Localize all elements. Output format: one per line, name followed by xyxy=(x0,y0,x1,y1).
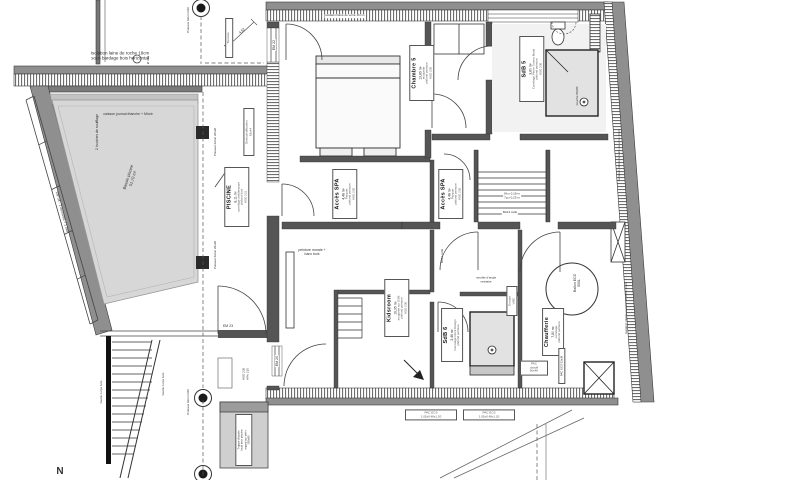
small-cabinet-box xyxy=(218,358,232,388)
room-label-kidsroom: Kidsroom 16,35 m² moquette sur OSB plafo… xyxy=(384,279,409,337)
label-deshumidificateur: Déshumidificateur 82x44 xyxy=(243,108,254,156)
shower-sdb6 xyxy=(470,312,514,375)
room-label-sdb6: SdB 6 3,46 m² Carrelage Rock Design plaf… xyxy=(441,308,463,362)
label-douche-8080: douche 80x80 xyxy=(576,87,580,106)
room-label-piscine: PISCINE 8,11 m² carrelage antidérapant p… xyxy=(224,167,249,227)
window-top xyxy=(488,10,578,22)
room-label-sdb5: SdB 5 3,80 m² Carrelage Pierre Tortora M… xyxy=(519,36,544,102)
note-roof-insulation: Isolation laine de roche 18cm sous barda… xyxy=(91,51,150,62)
label-hso235: HSO 235 HRv 215 xyxy=(242,368,249,380)
label-column-d20-bottom: Poteaux béton D20 xyxy=(187,389,191,415)
note-garde-corps-a: Garde corps bois xyxy=(100,381,104,404)
label-trappe: Trappe d'accès local tech piscine regard… xyxy=(235,414,252,466)
bench-wood xyxy=(286,252,294,328)
note-stair-dims: 8h x 0,18 m 7g x 0,25 m xyxy=(503,192,521,199)
flue-box xyxy=(584,362,614,394)
toilet xyxy=(551,22,565,45)
label-diam160: Ø 160 xyxy=(147,56,151,64)
label-pac-ecs-2: PAC ECS 1.05x0.48x1.20 xyxy=(463,409,515,420)
note-peinture-banc: peinture murale + banc bois xyxy=(298,248,325,256)
stair-kidsroom xyxy=(338,298,362,338)
stair-exterior xyxy=(106,336,160,478)
floor-plan-canvas: Isolation laine de roche 18cm sous barda… xyxy=(0,0,800,480)
label-pac-ecs-small: PAC ECS 53x38 xyxy=(558,348,565,384)
note-iso-int-a: Isolation intérieure laine de verre 16cm xyxy=(618,129,622,181)
note-iso-int-b: Isolation intérieure laine de verre 16cm xyxy=(625,282,629,334)
note-ba13-b: BA13 collé xyxy=(441,249,445,263)
towel-radiator xyxy=(590,14,600,52)
label-em20: EM 20 xyxy=(275,355,279,367)
label-column-d20-top: Poteaux béton D20 xyxy=(187,7,191,33)
note-meuble-angle: meuble d'angle vestiaire xyxy=(476,276,496,283)
label-groupe-vmc: Groupe VMC xyxy=(506,286,517,316)
label-pac-chauff: PAC chauff 60x46 xyxy=(520,361,548,376)
shower-sdb5 xyxy=(546,50,598,116)
room-label-chambre5: Chambre 5 13,89 m² moquette plafond pein… xyxy=(409,45,434,101)
label-em22: EM 22 xyxy=(272,39,276,51)
note-top-wall: isolation laine de verre 16 cm xyxy=(324,14,365,18)
plan-linework xyxy=(0,0,800,480)
note-ba13-a: BA13 collé xyxy=(502,211,518,215)
label-ballon-ecs: Ballon ECS 500L xyxy=(573,274,581,292)
note-bouches-soufflage: 2 bouches de soufflage xyxy=(95,114,99,150)
north-arrow: N xyxy=(56,466,63,478)
room-label-acces-spa-left: Accès SPA 4,48 m² Parquet plafond peintu… xyxy=(332,169,357,219)
bed xyxy=(316,56,400,156)
room-label-acces-spa-right: Accès SPA 4,48 m² Parquet plafond peintu… xyxy=(438,169,463,219)
label-poteaux-2020-a: Poteaux béton 20x20 xyxy=(214,127,218,157)
direction-arrow xyxy=(404,360,424,380)
note-caisson: caisson journal étanche + Miroir xyxy=(103,112,153,116)
label-terrasse: Terrasse xyxy=(225,18,233,58)
label-pac-ecs-1: PAC ECS 1.05x0.48x1.20 xyxy=(405,409,457,420)
note-garde-corps-b: Garde corps bois xyxy=(162,373,166,396)
label-em23: EM 23 xyxy=(222,324,234,328)
label-poteaux-2020-b: Poteaux béton 20x20 xyxy=(214,240,218,270)
window-em23 xyxy=(100,330,270,338)
